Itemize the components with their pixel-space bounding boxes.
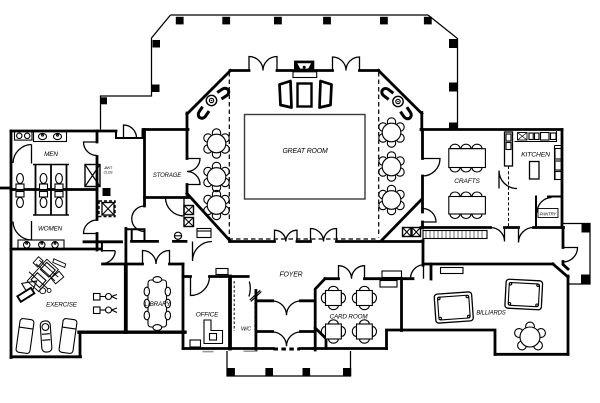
svg-text:LIBRARY: LIBRARY (145, 301, 172, 308)
svg-text:STORAGE: STORAGE (153, 173, 182, 179)
svg-text:CARD ROOM: CARD ROOM (330, 314, 369, 321)
svg-text:JAN'T: JAN'T (103, 166, 113, 170)
svg-text:PANTRY: PANTRY (540, 211, 558, 216)
svg-text:KITCHEN: KITCHEN (521, 152, 550, 159)
svg-text:FOYER: FOYER (280, 272, 303, 279)
svg-text:CRAFTS: CRAFTS (454, 178, 480, 185)
svg-text:BILLIARDS: BILLIARDS (476, 311, 505, 317)
svg-text:WOMEN: WOMEN (38, 226, 63, 233)
svg-text:GREAT ROOM: GREAT ROOM (282, 148, 327, 155)
svg-text:W/C: W/C (241, 327, 251, 333)
svg-text:EXERCISE: EXERCISE (46, 302, 78, 309)
svg-text:OFFICE: OFFICE (196, 312, 219, 319)
svg-text:MEN: MEN (44, 151, 58, 158)
svg-text:CLOS: CLOS (104, 171, 114, 175)
